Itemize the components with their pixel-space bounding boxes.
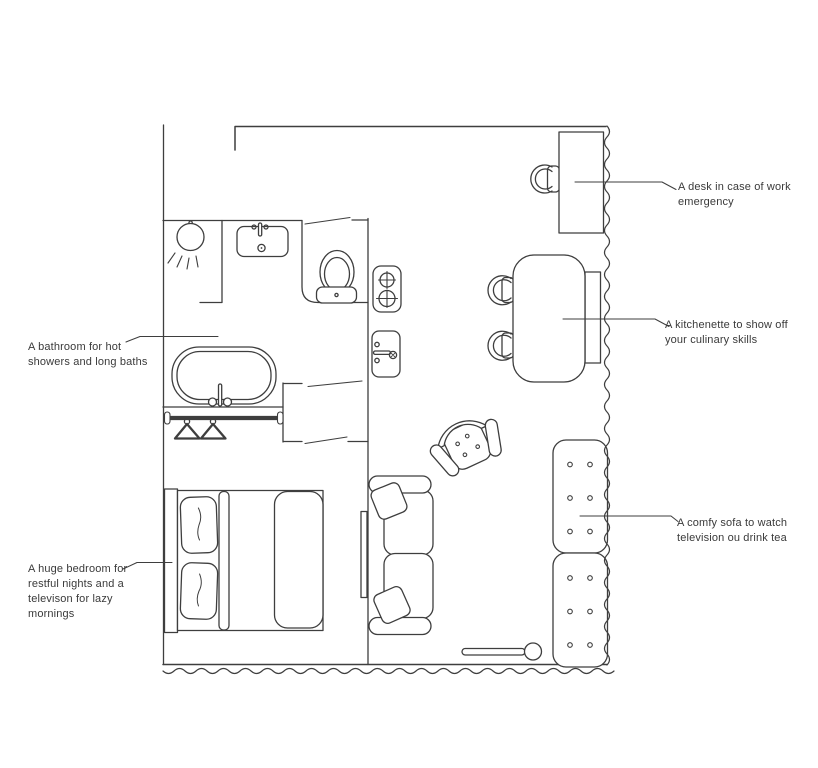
desk-chair-icon <box>531 165 560 193</box>
annotation-bedroom: A huge bedroom for restful nights and a … <box>28 562 127 622</box>
kitchen-sink-icon <box>372 331 400 377</box>
counter-icon <box>585 272 601 363</box>
hanger-icon <box>201 419 226 439</box>
floorplan-canvas: A desk in case of work emergency A kitch… <box>0 0 818 768</box>
headboard <box>165 489 178 633</box>
annotation-kitchenette: A kitchenette to show off your culinary … <box>665 318 788 348</box>
annotation-bathroom: A bathroom for hot showers and long bath… <box>28 340 148 370</box>
bathtub-icon <box>172 347 276 406</box>
bottom-wavy-edge <box>163 669 614 674</box>
sofa-icon <box>369 476 433 635</box>
annotation-sofa: A comfy sofa to watch television ou drin… <box>677 516 787 546</box>
shower-icon <box>168 221 204 269</box>
toilet-icon <box>317 251 357 304</box>
floorplan-drawing <box>0 0 818 768</box>
dining-chair-icon <box>488 276 513 305</box>
duvet <box>275 492 324 629</box>
bedroom-door-leaf <box>305 437 347 444</box>
annotation-desk: A desk in case of work emergency <box>678 180 791 210</box>
bathroom-inner-door-leaf <box>308 381 362 387</box>
tufted-bench-icon <box>553 440 608 553</box>
sheet-fold <box>219 492 229 631</box>
vestibule-walls <box>283 383 368 442</box>
pillow-icon <box>180 496 218 553</box>
hanger-icon <box>175 419 200 439</box>
dining-chair-icon <box>488 331 513 360</box>
tufted-bench-icon <box>553 553 608 667</box>
armchair-icon <box>423 407 512 482</box>
bathroom-wall <box>163 220 368 221</box>
pillow-icon <box>180 562 218 619</box>
washbasin-icon <box>237 223 288 257</box>
stove-icon <box>373 266 401 312</box>
television-icon <box>361 512 367 598</box>
bathroom-door-leaf <box>305 218 350 225</box>
top-wall <box>235 127 606 151</box>
clothes-rail-icon <box>165 412 284 424</box>
double-bed-icon <box>165 489 324 633</box>
floor-lamp-icon <box>462 643 542 660</box>
